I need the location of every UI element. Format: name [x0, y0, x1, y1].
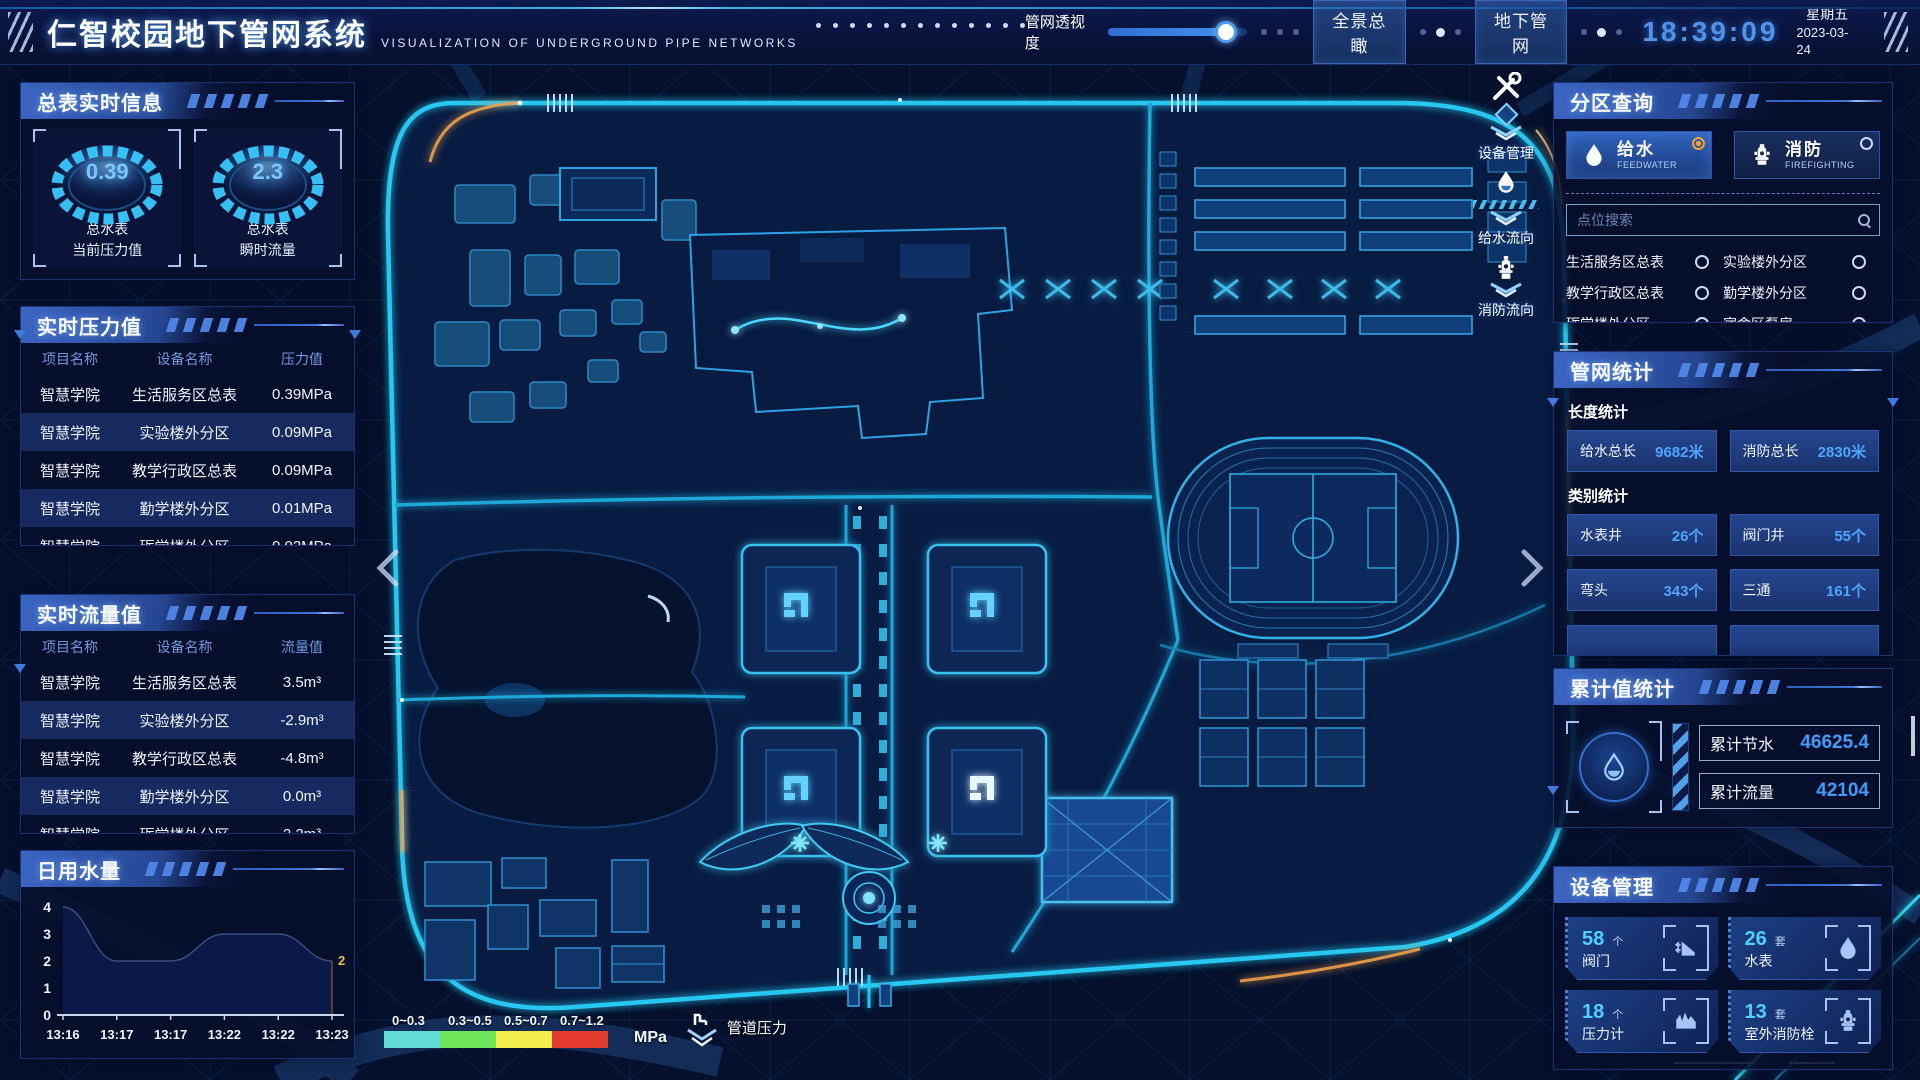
stat-box-clipped: [1567, 625, 1717, 655]
point-item[interactable]: 教学行政区总表: [1566, 277, 1723, 308]
water-drop-icon: [1599, 752, 1629, 782]
stat-box: 水表井26个: [1567, 514, 1717, 556]
header-right-decor: [1884, 12, 1908, 52]
pipe-stats-section: 管网统计 长度统计 给水总长9682米 消防总长2830米 类别统计 水表井26…: [1553, 351, 1893, 656]
radio-icon[interactable]: [1852, 255, 1866, 269]
stat-box-clipped: [1730, 625, 1880, 655]
radio-icon[interactable]: [1695, 286, 1709, 300]
dots-decor: [1581, 28, 1622, 37]
meter-info-section: 总表实时信息 0.39 总水表 当前压力值: [20, 82, 355, 280]
legend-label: 管道压力: [727, 1017, 787, 1038]
svg-text:13:22: 13:22: [208, 1027, 241, 1042]
point-search-box[interactable]: [1566, 204, 1880, 236]
stat-box: 给水总长9682米: [1567, 430, 1717, 472]
overview-button[interactable]: 全景总瞰: [1313, 0, 1406, 64]
pipe-opacity-label: 管网透视度: [1025, 11, 1094, 53]
diamond-decor: [1494, 102, 1518, 126]
chevron-down-icon: [1488, 125, 1524, 141]
svg-text:0: 0: [43, 1007, 51, 1023]
header-accent-line: [0, 7, 1920, 9]
table-row: 智慧学院勤学楼外分区0.01MPa: [21, 489, 354, 527]
radio-selected-icon[interactable]: [1692, 137, 1705, 150]
point-item[interactable]: 生活服务区总表: [1566, 246, 1723, 277]
dots-decor: [1261, 29, 1299, 35]
right-panel: 分区查询 给水 FEEDWATER: [1553, 82, 1893, 1070]
total-flow: 累计流量 42104: [1699, 773, 1880, 809]
device-card-hydrant[interactable]: 13套 室外消防栓: [1728, 990, 1882, 1053]
svg-text:13:22: 13:22: [262, 1027, 295, 1042]
radio-icon[interactable]: [1852, 286, 1866, 300]
hydrant-icon: [1493, 254, 1519, 282]
flow-table: 项目名称 设备名称 流量值 智慧学院生活服务区总表3.5m³ 智慧学院实验楼外分…: [21, 631, 354, 833]
total-water-saved: 累计节水 46625.4: [1699, 725, 1880, 761]
table-header-row: 项目名称 设备名称 流量值: [21, 631, 354, 663]
firefighting-toggle[interactable]: 消防 FIREFIGHTING: [1734, 131, 1880, 179]
table-header-row: 项目名称 设备名称 压力值: [21, 343, 354, 375]
header-left-decor: [8, 12, 33, 52]
point-item[interactable]: 砺学楼外分区: [1566, 308, 1723, 322]
clock-date: 2023-03-24: [1796, 24, 1858, 59]
svg-text:4: 4: [43, 899, 51, 915]
app-header: 仁智校园地下管网系统 VISUALIZATION OF UNDERGROUND …: [0, 0, 1920, 65]
section-title: 总表实时信息: [21, 87, 163, 116]
legend-segment: 0~0.3: [384, 1013, 440, 1048]
scroll-indicator[interactable]: [1911, 716, 1915, 756]
radio-unselected-icon[interactable]: [1860, 137, 1873, 150]
gauge-sublabel: 瞬时流量: [194, 240, 342, 261]
point-search-input[interactable]: [1575, 211, 1857, 229]
carousel-right-arrow[interactable]: [1520, 548, 1546, 588]
legend-segment: 0.5~0.7: [496, 1013, 552, 1048]
table-row: 智慧学院实验楼外分区0.09MPa: [21, 413, 354, 451]
chevron-down-icon: [685, 1028, 719, 1048]
section-title: 管网统计: [1554, 356, 1654, 385]
svg-text:2: 2: [338, 953, 345, 968]
flow-gauge-card: 2.3 总水表 瞬时流量: [194, 129, 342, 267]
cumulative-section: 累计值统计 累计节水 46625.4 累计流量 4: [1553, 668, 1893, 828]
app-title: 仁智校园地下管网系统: [47, 10, 367, 54]
realtime-flow-section: 实时流量值 项目名称 设备名称 流量值 智慧学院生活服务区总表3.5m³ 智慧学…: [20, 594, 355, 834]
stat-box: 三通161个: [1730, 569, 1880, 611]
daily-water-section: 日用水量 0123413:1613:1713:1713:2213:2213:23…: [20, 850, 355, 1059]
legend-segment: 0.7~1.2: [552, 1013, 608, 1048]
water-drop-icon: [1493, 169, 1519, 197]
map-tool-device-manage[interactable]: 设备管理: [1478, 72, 1534, 163]
app-subtitle: VISUALIZATION OF UNDERGROUND PIPE NETWOR…: [381, 36, 798, 54]
section-title: 设备管理: [1554, 871, 1654, 900]
pipe-opacity-slider[interactable]: [1108, 28, 1247, 36]
pipe-pressure-icon: [685, 1012, 719, 1048]
hatch-decor: [1473, 200, 1539, 209]
svg-text:13:16: 13:16: [46, 1027, 79, 1042]
water-drop-icon: [1581, 142, 1607, 168]
map-tool-feedwater-flow[interactable]: 给水流向: [1473, 169, 1539, 248]
legend-segment: 0.3~0.5: [440, 1013, 496, 1048]
section-title: 分区查询: [1554, 87, 1654, 116]
table-row: 智慧学院生活服务区总表0.39MPa: [21, 375, 354, 413]
pressure-gauge-card: 0.39 总水表 当前压力值: [33, 129, 181, 267]
radio-icon[interactable]: [1695, 317, 1709, 323]
point-item[interactable]: 宿舍区泵房: [1723, 308, 1880, 322]
point-list: 生活服务区总表 实验楼外分区 教学行政区总表 勤学楼外分区 砺学楼外分区 宿舍区…: [1554, 246, 1892, 322]
section-title: 日用水量: [21, 855, 121, 884]
category-stats-label: 类别统计: [1554, 472, 1892, 514]
chevron-down-icon: [1488, 210, 1524, 226]
stat-box: 阀门井55个: [1730, 514, 1880, 556]
svg-text:2: 2: [43, 953, 51, 969]
table-row: 智慧学院砺学楼外分区2.2m³: [21, 815, 354, 833]
section-title: 实时压力值: [21, 311, 142, 340]
realtime-pressure-section: 实时压力值 项目名称 设备名称 压力值 智慧学院生活服务区总表0.39MPa 智…: [20, 306, 355, 546]
wrench-icon: [1489, 72, 1523, 102]
svg-text:3: 3: [43, 926, 51, 942]
svg-text:1: 1: [43, 980, 51, 996]
section-title: 累计值统计: [1554, 673, 1675, 702]
device-card-pressure[interactable]: 18个 压力计: [1565, 990, 1719, 1053]
header-dots-decor: [816, 23, 1025, 28]
table-row: 智慧学院砺学楼外分区0.02MPa: [21, 527, 354, 545]
clock-time: 18:39:09: [1642, 16, 1778, 48]
point-item[interactable]: 实验楼外分区: [1723, 246, 1880, 277]
table-row: 智慧学院勤学楼外分区0.0m³: [21, 777, 354, 815]
table-row: 智慧学院教学行政区总表-4.8m³: [21, 739, 354, 777]
gauge-sublabel: 当前压力值: [33, 240, 181, 261]
table-row: 智慧学院实验楼外分区-2.9m³: [21, 701, 354, 739]
length-stats-label: 长度统计: [1554, 388, 1892, 430]
left-panel: 总表实时信息 0.39 总水表 当前压力值: [20, 82, 355, 1059]
legend-unit: MPa: [634, 1029, 667, 1047]
table-row: 智慧学院生活服务区总表3.5m³: [21, 663, 354, 701]
hydrant-icon: [1749, 142, 1775, 168]
section-title: 实时流量值: [21, 599, 142, 628]
map-tool-fire-flow[interactable]: 消防流向: [1478, 254, 1534, 320]
slider-thumb[interactable]: [1215, 21, 1237, 43]
svg-text:13:17: 13:17: [100, 1027, 133, 1042]
svg-text:13:23: 13:23: [315, 1027, 348, 1042]
daily-water-chart: 0123413:1613:1713:1713:2213:2213:232: [23, 891, 352, 1051]
chevron-down-icon: [1488, 282, 1524, 298]
dots-decor: [1420, 28, 1461, 37]
carousel-left-arrow[interactable]: [374, 548, 400, 588]
radio-icon[interactable]: [1695, 255, 1709, 269]
zone-query-section: 分区查询 给水 FEEDWATER: [1553, 82, 1893, 323]
hazard-stripe-decor: [1672, 723, 1689, 811]
pressure-table: 项目名称 设备名称 压力值 智慧学院生活服务区总表0.39MPa 智慧学院实验楼…: [21, 343, 354, 545]
pressure-legend: 0~0.3 0.3~0.5 0.5~0.7 0.7~1.2 MPa 管道压力: [384, 1012, 787, 1048]
device-card-valve[interactable]: 58个 阀门: [1565, 917, 1719, 980]
search-icon: [1857, 213, 1871, 227]
feedwater-toggle[interactable]: 给水 FEEDWATER: [1566, 131, 1712, 179]
point-item[interactable]: 勤学楼外分区: [1723, 277, 1880, 308]
device-card-meter[interactable]: 26套 水表: [1728, 917, 1882, 980]
device-management-section: 设备管理 58个 阀门 26套 水表: [1553, 866, 1893, 1070]
table-row: 智慧学院教学行政区总表0.09MPa: [21, 451, 354, 489]
stat-box: 消防总长2830米: [1730, 430, 1880, 472]
svg-text:13:17: 13:17: [154, 1027, 187, 1042]
stat-box: 弯头343个: [1567, 569, 1717, 611]
radio-icon[interactable]: [1852, 317, 1866, 323]
gauge-value: 2.3: [198, 159, 338, 185]
gauge-glyph-icon: [692, 1012, 712, 1028]
gauge-value: 0.39: [37, 159, 177, 185]
underground-button[interactable]: 地下管网: [1475, 0, 1568, 64]
water-badge: [1566, 721, 1662, 813]
